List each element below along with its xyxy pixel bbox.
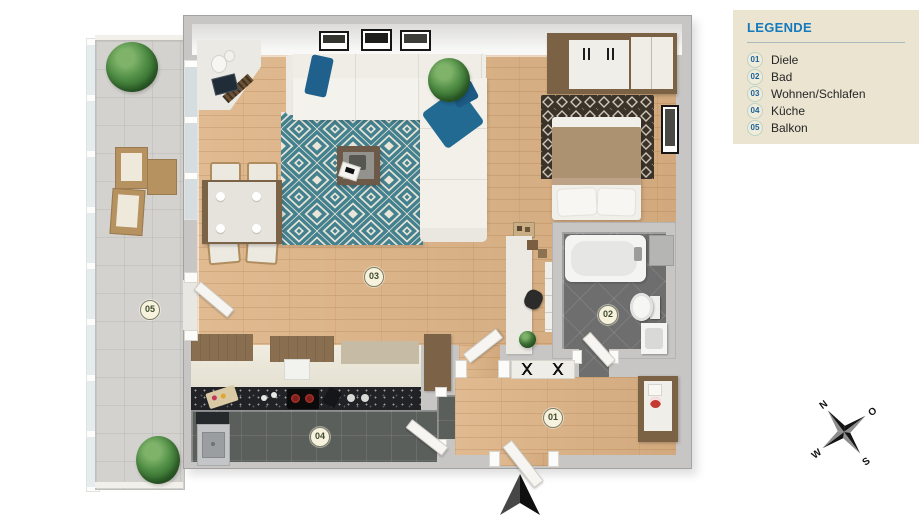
legend-item: 02 Bad bbox=[747, 68, 905, 85]
hall-wardrobe bbox=[638, 376, 678, 442]
knob bbox=[347, 394, 355, 402]
extractor-hood bbox=[284, 359, 310, 380]
plate bbox=[216, 224, 225, 233]
bed-blanket bbox=[552, 127, 641, 184]
chair-cushion bbox=[116, 194, 139, 227]
dining-table bbox=[202, 180, 282, 244]
candle bbox=[525, 227, 530, 232]
compass-west-label: W bbox=[810, 447, 825, 462]
wall-picture bbox=[319, 31, 349, 51]
bed-pillow bbox=[597, 187, 637, 216]
kitchen-door-threshold bbox=[437, 395, 455, 439]
bar-counter-tan bbox=[341, 341, 419, 364]
kitchen-sink-unit bbox=[197, 424, 230, 466]
bathtub-basin bbox=[571, 241, 637, 276]
legend-label: Balkon bbox=[771, 121, 808, 135]
legend-item: 01 Diele bbox=[747, 51, 905, 68]
sink-basin bbox=[645, 328, 663, 349]
door-jamb bbox=[548, 451, 559, 467]
tall-cabinet bbox=[424, 334, 451, 391]
blanket-fold bbox=[552, 178, 641, 185]
wall-picture bbox=[661, 105, 679, 154]
balcony-plant-top bbox=[106, 42, 158, 92]
room-badge-wohnen: 03 bbox=[364, 267, 384, 287]
door-jamb bbox=[184, 330, 198, 341]
burner bbox=[291, 394, 300, 403]
legend-badge: 02 bbox=[747, 69, 763, 85]
plate bbox=[252, 224, 261, 233]
legend-item: 05 Balkon bbox=[747, 119, 905, 136]
compass-south-label: S bbox=[861, 455, 873, 468]
picture-art bbox=[665, 109, 675, 146]
room-badge-bad: 02 bbox=[598, 305, 618, 325]
room-badge-balkon: 05 bbox=[140, 300, 160, 320]
picture-art bbox=[404, 34, 427, 43]
picture-art bbox=[323, 35, 345, 43]
picture-art bbox=[365, 33, 388, 43]
door-jamb bbox=[435, 387, 447, 397]
door-jamb bbox=[184, 272, 198, 283]
legend-label: Diele bbox=[771, 53, 798, 67]
legend-label: Küche bbox=[771, 104, 805, 118]
wardrobe-doors bbox=[631, 37, 673, 89]
knob bbox=[261, 395, 267, 401]
door-handle-slit bbox=[583, 48, 585, 60]
bath-cabinet bbox=[649, 235, 674, 266]
food-item bbox=[211, 395, 217, 401]
entrance-arrow-icon bbox=[493, 473, 547, 517]
legend-panel: LEGENDE 01 Diele 02 Bad 03 Wohnen/Schlaf… bbox=[733, 10, 919, 144]
balcony-floor bbox=[95, 40, 185, 490]
balcony-chair bbox=[115, 147, 148, 189]
drain bbox=[211, 442, 215, 446]
room-badge-kueche: 04 bbox=[310, 427, 330, 447]
door-jamb bbox=[455, 360, 467, 378]
stove bbox=[287, 389, 319, 409]
compass-rose-icon: N O S W bbox=[792, 380, 896, 484]
vase bbox=[224, 50, 235, 62]
console-x-leg bbox=[552, 363, 564, 375]
toilet bbox=[630, 293, 653, 321]
wall-picture bbox=[400, 30, 431, 51]
legend-badge: 04 bbox=[747, 103, 763, 119]
balcony-window bbox=[184, 60, 198, 220]
legend-item: 03 Wohnen/Schlafen bbox=[747, 85, 905, 102]
plate bbox=[216, 192, 225, 201]
balcony-plant-bottom bbox=[136, 436, 180, 484]
legend-badge: 01 bbox=[747, 52, 763, 68]
door-jamb bbox=[498, 360, 510, 378]
balcony-rail-bottom bbox=[95, 482, 183, 488]
legend-label: Bad bbox=[771, 70, 792, 84]
red-canister bbox=[650, 397, 661, 408]
wall-picture bbox=[361, 29, 392, 51]
small-box bbox=[648, 384, 662, 396]
legend-title: LEGENDE bbox=[747, 20, 905, 35]
bar-counter bbox=[191, 334, 253, 361]
console-table bbox=[511, 360, 575, 379]
wardrobe-doors bbox=[569, 40, 629, 89]
wall-shelf-box bbox=[538, 249, 547, 258]
legend-divider bbox=[747, 42, 905, 43]
compass-north-label: N bbox=[818, 399, 830, 412]
door-handle-slit bbox=[607, 48, 609, 60]
legend-badge: 05 bbox=[747, 120, 763, 136]
sink-unit-top bbox=[196, 412, 229, 424]
door-handle-slit bbox=[588, 48, 590, 60]
room-badge-diele: 01 bbox=[543, 408, 563, 428]
door-jamb bbox=[489, 451, 500, 467]
living-plant bbox=[428, 58, 470, 102]
plate bbox=[252, 192, 261, 201]
knob bbox=[361, 394, 369, 402]
floorplan-canvas: 01 02 03 04 05 LEGENDE 01 Diele 02 Bad 0… bbox=[0, 0, 924, 520]
burner bbox=[305, 394, 314, 403]
candle bbox=[517, 226, 522, 231]
balcony-table bbox=[147, 159, 177, 195]
console-x-leg bbox=[521, 363, 533, 375]
niche-plant bbox=[519, 331, 536, 348]
compass-east-label: O bbox=[866, 405, 879, 419]
bed-pillow bbox=[556, 187, 597, 217]
sofa-chaise-end bbox=[420, 228, 487, 242]
dining-table-top bbox=[208, 182, 276, 242]
tub-faucet bbox=[634, 247, 642, 261]
legend-label: Wohnen/Schlafen bbox=[771, 87, 866, 101]
legend-item: 04 Küche bbox=[747, 102, 905, 119]
wardrobe bbox=[547, 33, 677, 94]
door-handle-slit bbox=[612, 48, 614, 60]
knob bbox=[271, 392, 277, 398]
wall-shelf-box bbox=[527, 240, 538, 250]
balcony-chair bbox=[109, 188, 145, 236]
remote bbox=[345, 167, 355, 175]
legend-badge: 03 bbox=[747, 86, 763, 102]
food-item bbox=[220, 393, 226, 399]
chair-cushion bbox=[121, 153, 142, 181]
